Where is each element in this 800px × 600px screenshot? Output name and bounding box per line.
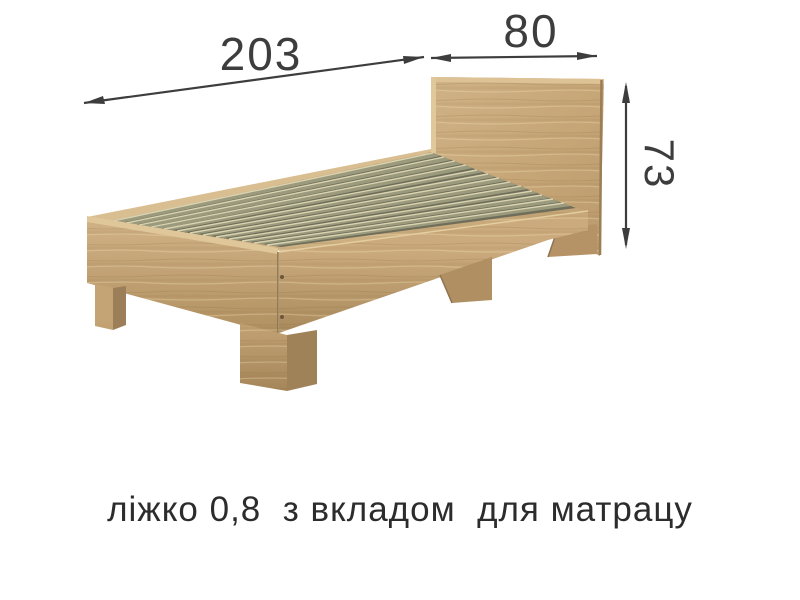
arrowhead: [403, 56, 424, 64]
dimension-length: 203: [84, 28, 424, 104]
width-dimension-label: 80: [503, 5, 558, 57]
length-dimension-label: 203: [220, 28, 303, 80]
headboard-right-edge: [600, 80, 602, 255]
arrowhead: [622, 82, 630, 103]
dimension-height: 73: [622, 82, 683, 249]
screw: [280, 315, 284, 319]
dimension-width: 80: [431, 5, 597, 62]
product-page: 203 80 73 ліжко 0,8 з вкладом для матрац…: [0, 0, 800, 600]
arrowhead: [84, 96, 105, 104]
arrowhead: [622, 228, 630, 249]
height-dimension-label: 73: [636, 139, 683, 190]
arrowhead: [577, 52, 597, 60]
caption-line-uk-title: ліжко 0,8 з вкладом для матрацу: [0, 490, 800, 529]
foot-far-leg: [95, 284, 126, 330]
foot-near-leg: [240, 323, 317, 391]
product-caption: ліжко 0,8 з вкладом для матрацу спальне …: [0, 412, 800, 600]
arrowhead: [431, 54, 451, 62]
screw: [280, 275, 284, 279]
